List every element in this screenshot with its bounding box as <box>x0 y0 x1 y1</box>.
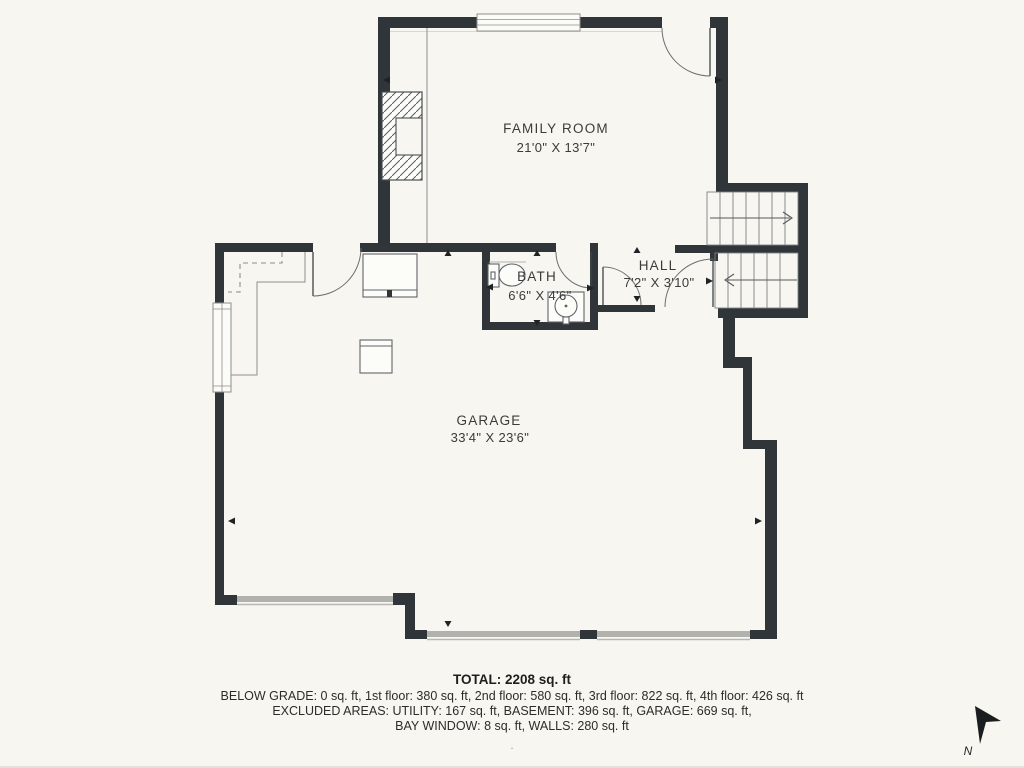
stair-flight-upper <box>707 192 798 245</box>
arrow-left-icon <box>228 518 235 525</box>
garage-dimensions: 33'4" X 23'6" <box>451 430 530 445</box>
family-room-dimensions: 21'0" X 13'7" <box>517 140 596 155</box>
floor-plan-page: FAMILY ROOM 21'0" X 13'7" BATH 6'6" X 4'… <box>0 0 1024 768</box>
hall-label: HALL <box>639 258 678 273</box>
garage-door-middle <box>427 631 580 640</box>
summary-below-grade: BELOW GRADE: 0 sq. ft, 1st floor: 380 sq… <box>221 689 804 703</box>
area-summary: TOTAL: 2208 sq. ft BELOW GRADE: 0 sq. ft… <box>221 672 804 752</box>
utility-fixtures <box>360 254 417 373</box>
garage-door-right <box>597 631 750 640</box>
garage-side-door <box>313 248 361 296</box>
dimension-arrows <box>228 77 762 628</box>
summary-footnote-dot: . <box>510 740 513 752</box>
garage-door-left <box>237 596 393 605</box>
arrow-right-icon <box>755 518 762 525</box>
floor-plan-svg: FAMILY ROOM 21'0" X 13'7" BATH 6'6" X 4'… <box>0 0 1024 768</box>
stair-flight-lower <box>715 253 798 308</box>
arrow-up-icon <box>634 247 641 253</box>
walls <box>215 17 808 639</box>
north-label: N <box>964 744 973 758</box>
hvac-unit <box>360 340 392 373</box>
family-room-window <box>477 14 580 31</box>
summary-bay-window: BAY WINDOW: 8 sq. ft, WALLS: 280 sq. ft <box>395 719 629 733</box>
garage-window <box>213 303 231 392</box>
family-room-label: FAMILY ROOM <box>503 121 609 136</box>
bath-dimensions: 6'6" X 4'6" <box>508 288 571 303</box>
north-arrow: N <box>964 706 1001 758</box>
north-arrow-icon <box>975 706 1001 744</box>
hall-dimensions: 7'2" X 3'10" <box>623 275 694 290</box>
bath-door <box>556 252 591 288</box>
arrow-down-icon <box>445 621 452 627</box>
family-room-door <box>662 28 710 76</box>
cabinet <box>363 254 417 297</box>
arrow-down-icon <box>634 296 641 302</box>
summary-total: TOTAL: 2208 sq. ft <box>453 672 572 687</box>
garage-label: GARAGE <box>457 413 522 428</box>
bath-label: BATH <box>517 269 557 284</box>
fireplace <box>382 92 422 180</box>
summary-excluded-areas: EXCLUDED AREAS: UTILITY: 167 sq. ft, BAS… <box>272 704 751 718</box>
garage-doors <box>237 596 750 640</box>
arrow-right-icon <box>706 278 713 285</box>
